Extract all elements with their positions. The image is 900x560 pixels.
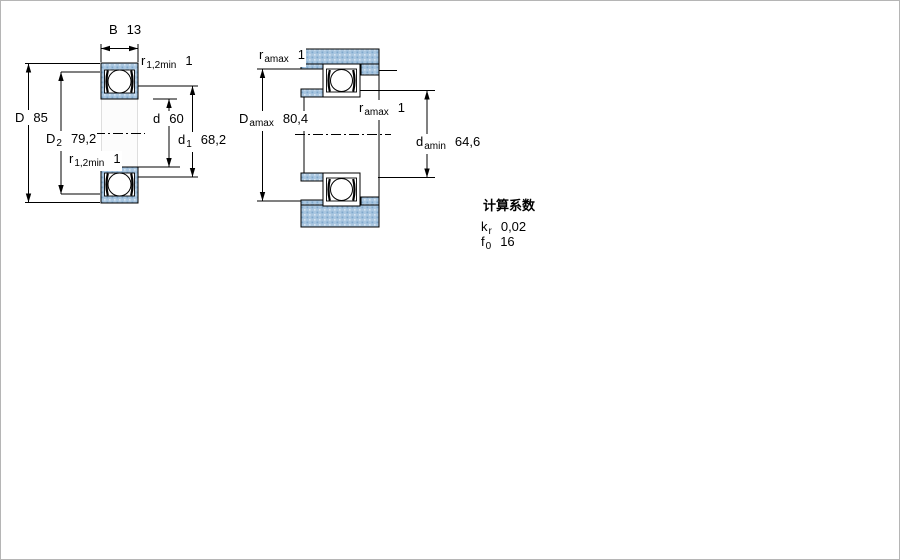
dim-symbol: D — [46, 131, 55, 146]
housing-bottom-block — [301, 205, 379, 227]
dim-subscript: 2 — [56, 138, 62, 149]
d-bore-arrow-top — [166, 99, 171, 108]
dim-symbol: d — [153, 111, 160, 126]
dim-value: 79,2 — [71, 131, 96, 146]
d1-arrow-top — [190, 86, 195, 95]
dim-label-abutment-diameter-max: Damax80,4 — [238, 111, 309, 131]
housing-bottom-shoulder — [361, 197, 379, 205]
dim-value: 1 — [113, 151, 120, 166]
dim-label-outside-diameter: D85 — [14, 110, 49, 125]
d1-arrow-bottom — [190, 168, 195, 177]
dim-subscript: amax — [249, 118, 273, 129]
dim-value: 60 — [169, 111, 183, 126]
technical-drawing — [1, 1, 899, 559]
d-cap-arrow-bottom — [26, 194, 31, 203]
dim-label-shoulder-diameter: d168,2 — [177, 132, 227, 152]
dim-value: 80,4 — [283, 111, 308, 126]
shaft-shoulder-bottom — [301, 173, 323, 181]
factor-value: 16 — [500, 234, 514, 249]
housing-top-shoulder — [361, 64, 379, 75]
dim-subscript: 1,2min — [146, 60, 176, 71]
factor-f0: f016 — [480, 234, 516, 254]
factor-value: 0,02 — [501, 219, 526, 234]
dim-value: 13 — [127, 22, 141, 37]
dim-symbol: D — [239, 111, 248, 126]
factor-symbol: f — [481, 234, 485, 249]
damin-arrow-bottom — [424, 169, 429, 178]
d2-arrow-bottom — [58, 185, 63, 194]
dim-subscript: amin — [424, 141, 446, 152]
mounted-bearing-top-ball — [331, 70, 353, 92]
dim-subscript: 1 — [186, 139, 192, 150]
b-arrow-left — [101, 46, 110, 51]
mounting-cross-section — [257, 49, 435, 227]
dim-symbol: r — [69, 151, 73, 166]
dim-symbol: D — [15, 110, 24, 125]
bearing-bottom-ball — [108, 173, 131, 196]
dim-subscript: 1,2min — [74, 158, 104, 169]
dim-value: 85 — [33, 110, 47, 125]
factor-subscript: 0 — [486, 241, 492, 252]
dim-value: 1 — [398, 100, 405, 115]
dim-value: 1 — [185, 53, 192, 68]
calculation-factors-title: 计算系数 — [482, 198, 536, 213]
dim-label-abutment-diameter-min: damin64,6 — [415, 134, 481, 154]
dim-value: 68,2 — [201, 132, 226, 147]
dim-symbol: r — [359, 100, 363, 115]
bearing-datasheet-figure: B13 r1,2min1 D85 D279,2 r1,2min1 d60 d16… — [0, 0, 900, 560]
b-arrow-right — [129, 46, 138, 51]
dim-label-chamfer-bottom: r1,2min1 — [68, 151, 122, 171]
dim-label-bore-diameter: d60 — [152, 111, 185, 126]
dim-label-chamfer-top: r1,2min1 — [140, 53, 194, 73]
dim-symbol: r — [259, 47, 263, 62]
damax-arrow-top — [260, 69, 265, 78]
dim-value: 64,6 — [455, 134, 480, 149]
dim-subscript: amax — [264, 54, 288, 65]
d-cap-arrow-top — [26, 64, 31, 73]
damin-arrow-top — [424, 91, 429, 100]
dim-value: 1 — [298, 47, 305, 62]
damax-arrow-bottom — [260, 192, 265, 201]
mounted-bearing-bottom-ball — [331, 179, 353, 201]
dim-symbol: d — [178, 132, 185, 147]
dim-label-width: B13 — [108, 22, 142, 37]
dim-symbol: r — [141, 53, 145, 68]
dim-label-housing-fillet: ramax1 — [258, 47, 306, 67]
dim-label-shaft-fillet: ramax1 — [358, 100, 406, 120]
dim-label-recess-diameter: D279,2 — [45, 131, 97, 151]
bearing-top-ball — [108, 70, 131, 93]
factor-symbol: k — [481, 219, 488, 234]
d2-arrow-top — [58, 72, 63, 81]
housing-top-block — [301, 49, 379, 64]
d-bore-arrow-bottom — [166, 158, 171, 167]
dim-symbol: d — [416, 134, 423, 149]
housing-bottom-lip — [301, 200, 323, 205]
dim-subscript: amax — [364, 107, 388, 118]
dim-symbol: B — [109, 22, 118, 37]
shaft-shoulder-top — [301, 89, 323, 97]
